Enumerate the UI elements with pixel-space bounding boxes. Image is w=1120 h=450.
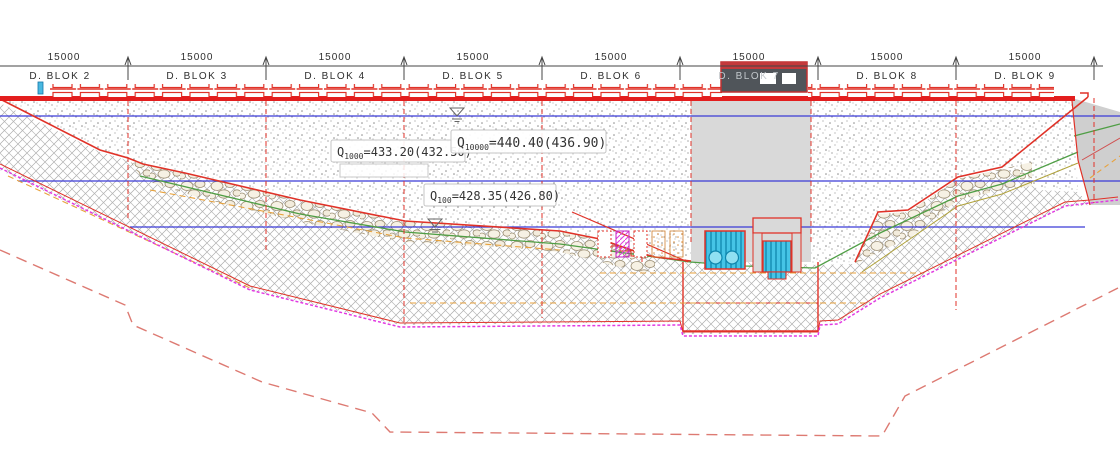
q1000-subscript: 1000 bbox=[344, 152, 363, 161]
right-bank-terrain bbox=[1072, 98, 1120, 205]
block-label-7: D. BLOK 7 bbox=[718, 71, 779, 82]
dimension-label: 15000 bbox=[871, 52, 904, 63]
crest-structures bbox=[0, 82, 1088, 101]
right-gate-sill bbox=[768, 272, 786, 279]
left-gate bbox=[705, 231, 745, 269]
dimension-label: 15000 bbox=[1009, 52, 1042, 63]
q100-prefix: Q bbox=[430, 189, 437, 203]
q100-value: =428.35(426.80) bbox=[452, 189, 560, 203]
q1000-prefix: Q bbox=[337, 145, 344, 159]
block-label-8: D. BLOK 8 bbox=[856, 71, 917, 82]
block-label-2: D. BLOK 2 bbox=[29, 71, 90, 82]
dimension-label: 15000 bbox=[595, 52, 628, 63]
dimension-label: 15000 bbox=[48, 52, 81, 63]
q10000-value: =440.40(436.90) bbox=[489, 136, 606, 151]
dimension-label: 15000 bbox=[319, 52, 352, 63]
dimension-label: 15000 bbox=[181, 52, 214, 63]
building-window-2 bbox=[782, 73, 796, 84]
block-label-4: D. BLOK 4 bbox=[304, 71, 365, 82]
right-gate bbox=[763, 241, 791, 272]
left-gate-port-1 bbox=[709, 251, 722, 264]
magenta-hatched-slot bbox=[616, 231, 629, 257]
block-label-6: D. BLOK 6 bbox=[580, 71, 641, 82]
left-gate-port-2 bbox=[726, 251, 739, 264]
block-label-5: D. BLOK 5 bbox=[442, 71, 503, 82]
stoplog-slots bbox=[598, 231, 683, 257]
cad-section-canvas: 15000 15000 15000 15000 15000 15000 1500… bbox=[0, 0, 1120, 450]
block-label-9: D. BLOK 9 bbox=[994, 71, 1055, 82]
q100-subscript: 100 bbox=[437, 196, 452, 205]
q10000-prefix: Q bbox=[457, 136, 465, 151]
parapet-blocks-right-run bbox=[808, 84, 1054, 97]
parapet-blocks-left-run bbox=[50, 84, 722, 97]
crest-right-end-cap bbox=[1080, 93, 1088, 97]
dimension-label: 15000 bbox=[457, 52, 490, 63]
empty-callout-box bbox=[340, 164, 428, 177]
right-gate-pier-left bbox=[753, 233, 762, 272]
dam-longitudinal-section-drawing: 15000 15000 15000 15000 15000 15000 1500… bbox=[0, 0, 1120, 450]
block-label-3: D. BLOK 3 bbox=[166, 71, 227, 82]
q10000-subscript: 10000 bbox=[465, 143, 489, 152]
right-gate-pier-right bbox=[792, 233, 801, 272]
right-gate-cap bbox=[753, 218, 801, 233]
dimension-label: 15000 bbox=[733, 52, 766, 63]
staff-gauge-marker bbox=[38, 82, 43, 94]
